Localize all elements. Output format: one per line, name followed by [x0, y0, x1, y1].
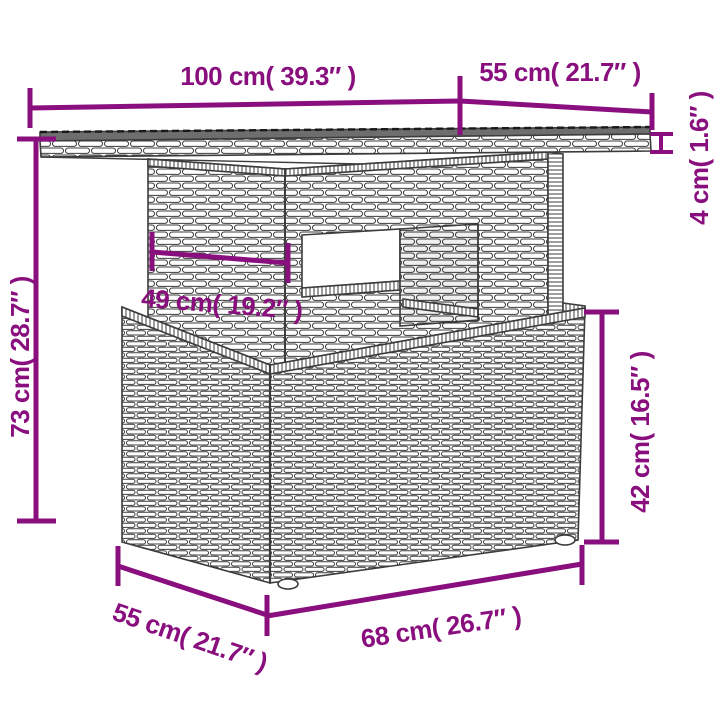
column-side-face	[548, 152, 563, 318]
foot-right	[555, 535, 575, 545]
dim-table-width: 100 cm( 39.3″ )	[30, 61, 460, 135]
dim-line-table-width	[30, 101, 460, 108]
dimension-diagram: 100 cm( 39.3″ ) 55 cm( 21.7″ ) 4 cm( 1.6…	[0, 0, 720, 720]
dim-label-base-width: 68 cm( 26.7″ )	[359, 600, 523, 654]
dim-label-base-height: 42 cm( 16.5″ )	[625, 351, 655, 513]
dim-base-height: 42 cm( 16.5″ )	[584, 312, 655, 542]
dim-label-table-depth: 55 cm( 21.7″ )	[479, 57, 641, 87]
dim-label-table-width: 100 cm( 39.3″ )	[180, 61, 356, 91]
dim-line-table-depth	[460, 101, 652, 112]
dim-tabletop-thickness: 4 cm( 1.6″ )	[650, 91, 714, 225]
rattan-table-drawing: 100 cm( 39.3″ ) 55 cm( 21.7″ ) 4 cm( 1.6…	[0, 0, 720, 720]
base-box	[122, 307, 585, 589]
foot-front	[278, 579, 298, 589]
dim-table-height: 73 cm( 28.7″ )	[5, 139, 56, 521]
dim-label-thickness: 4 cm( 1.6″ )	[684, 91, 714, 225]
dim-table-depth: 55 cm( 21.7″ )	[460, 57, 652, 130]
pedestal-window	[302, 229, 400, 288]
dim-label-height: 73 cm( 28.7″ )	[5, 276, 35, 438]
